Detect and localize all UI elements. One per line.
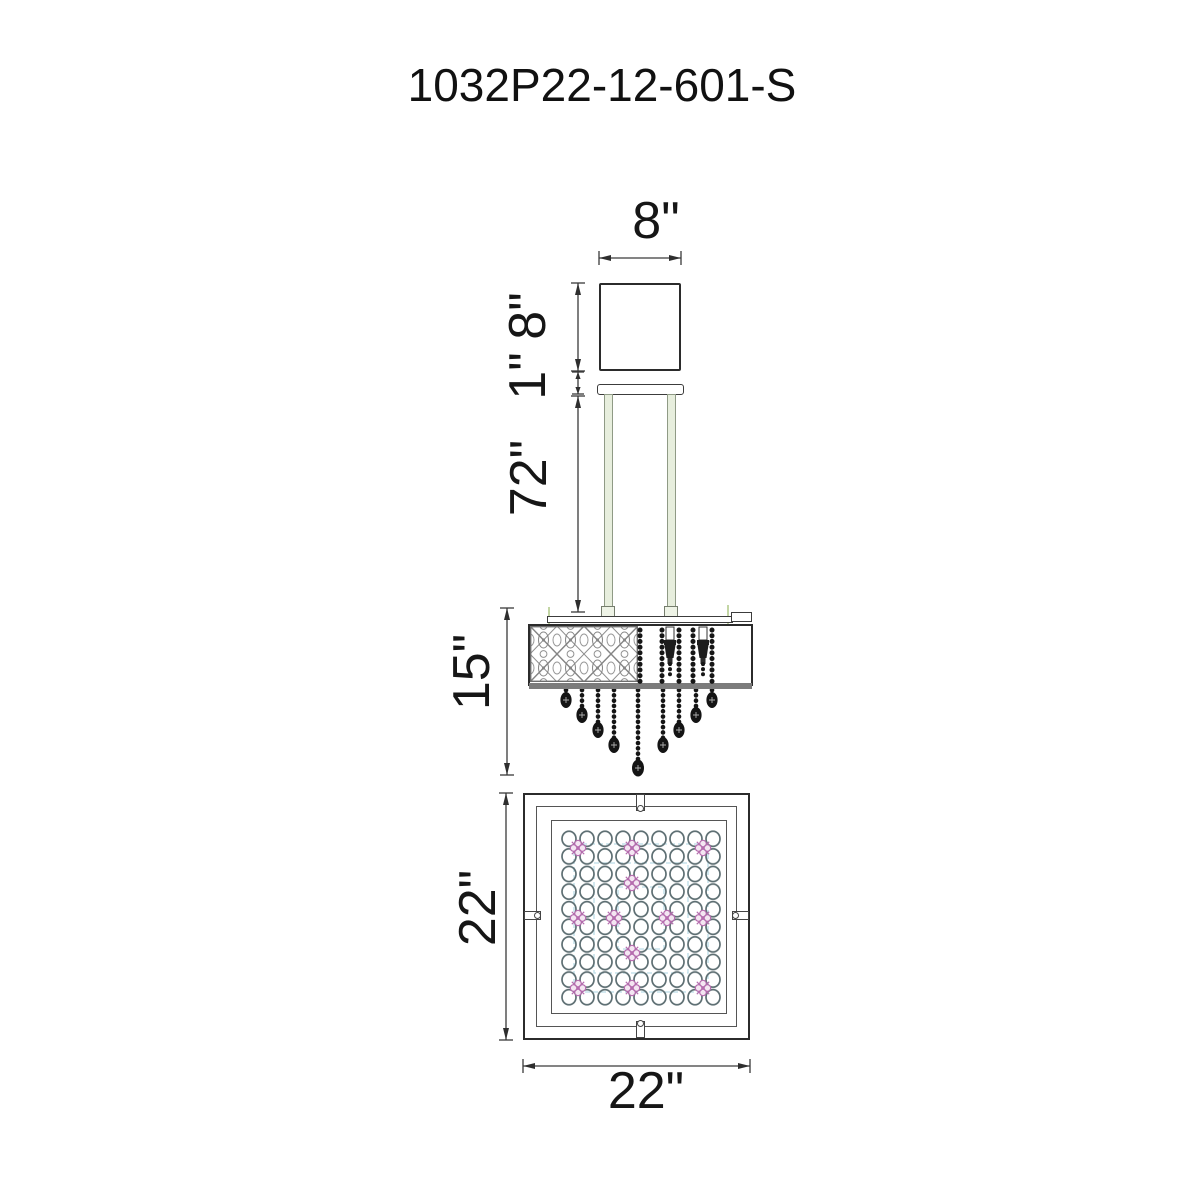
dim-line-canopy-height [570, 281, 586, 373]
plan-crystal-grid [560, 830, 722, 1006]
dim-label-canopy-gap: 1" [502, 352, 554, 399]
spec-sheet: 1032P22-12-601-S 8" 8" 1" 72" [0, 0, 1200, 1200]
hanging-rod-left [604, 394, 613, 608]
side-bracket [731, 612, 752, 622]
hanging-rod-right [667, 394, 676, 608]
dim-label-canopy-width: 8" [632, 195, 679, 247]
filigree-panel [530, 626, 638, 682]
plan-tab-left-dot [534, 912, 541, 919]
interior-crystals [637, 626, 751, 686]
dim-line-canopy-width [593, 250, 687, 266]
dim-line-plan-width [517, 1058, 756, 1074]
dim-line-plan-height [498, 791, 514, 1042]
dim-label-rod-length: 72" [503, 440, 555, 516]
plan-tab-top-dot [637, 805, 644, 812]
canopy-front-view [599, 283, 681, 371]
plan-tab-right-dot [732, 912, 739, 919]
dim-label-plan-height: 22" [452, 870, 504, 946]
bulb-socket-left [664, 627, 676, 678]
dim-label-body-height: 15" [446, 634, 498, 710]
fixture-top-plate [547, 616, 733, 623]
hanging-crystal-strands [553, 689, 753, 784]
page-title: 1032P22-12-601-S [408, 62, 797, 108]
dim-line-rod-length [570, 394, 586, 614]
plan-tab-bottom-dot [637, 1020, 644, 1027]
bulb-socket-right [697, 627, 709, 678]
dim-line-body-height [499, 606, 515, 777]
dim-line-canopy-gap [570, 371, 586, 395]
dim-label-canopy-height: 8" [502, 292, 554, 339]
